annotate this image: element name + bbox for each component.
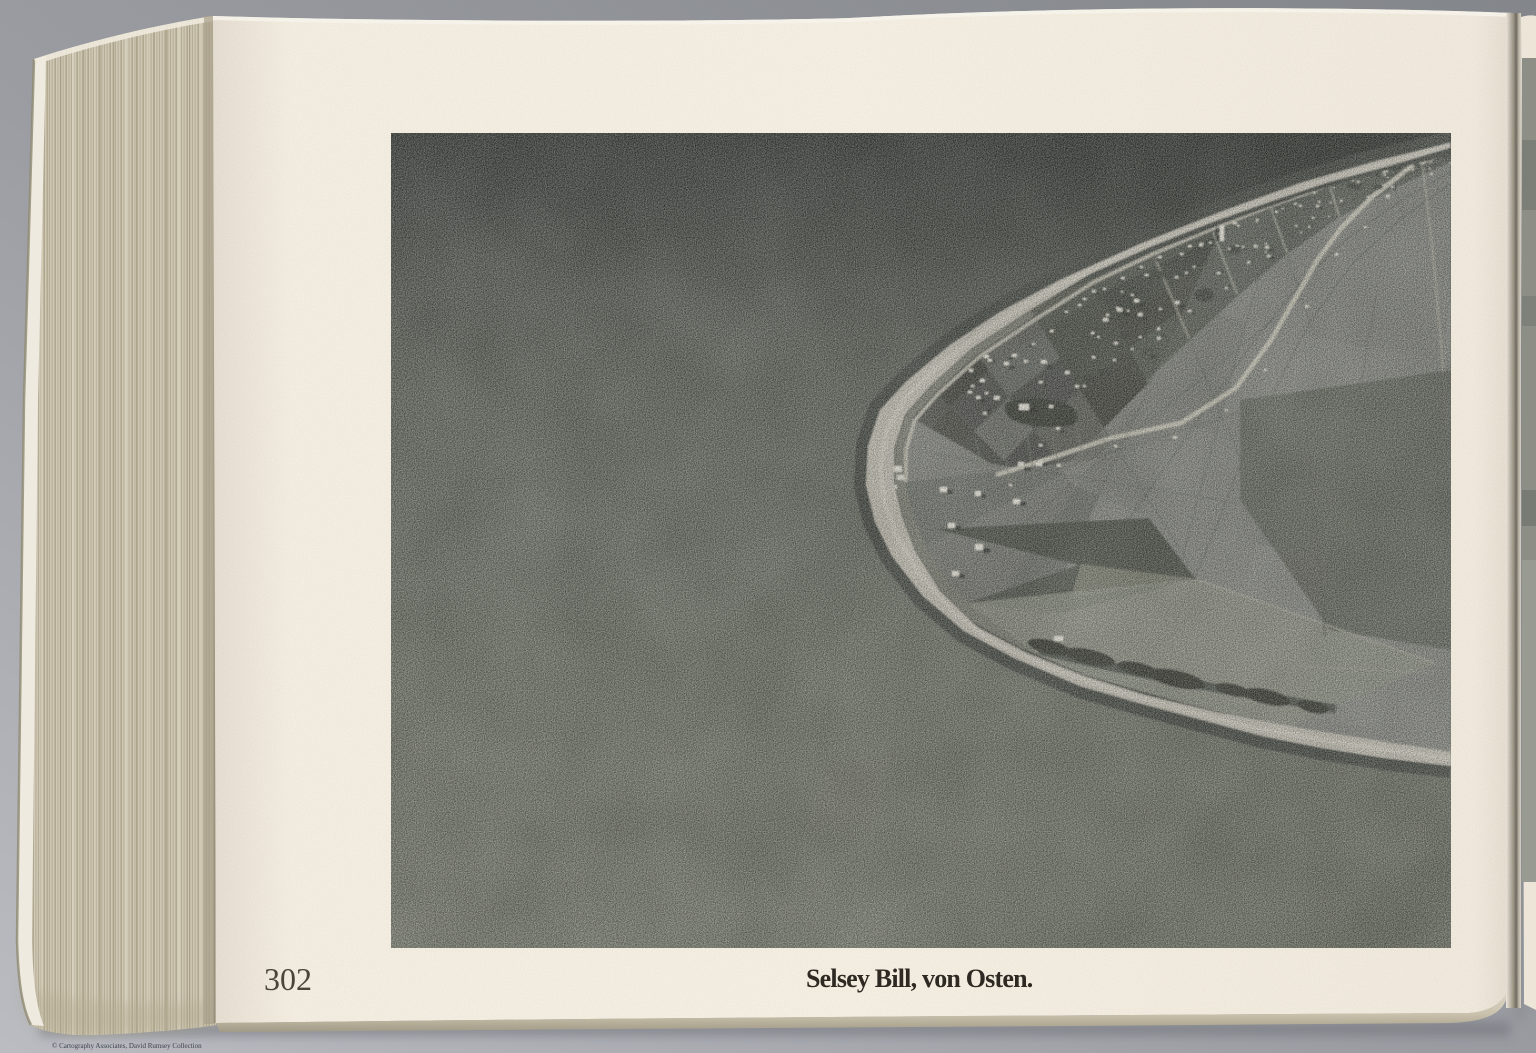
svg-text:302: 302: [264, 961, 312, 997]
svg-text:© Cartography Associates, Davi: © Cartography Associates, David Rumsey C…: [52, 1042, 202, 1050]
svg-text:Selsey Bill, von Osten.: Selsey Bill, von Osten.: [806, 964, 1033, 993]
